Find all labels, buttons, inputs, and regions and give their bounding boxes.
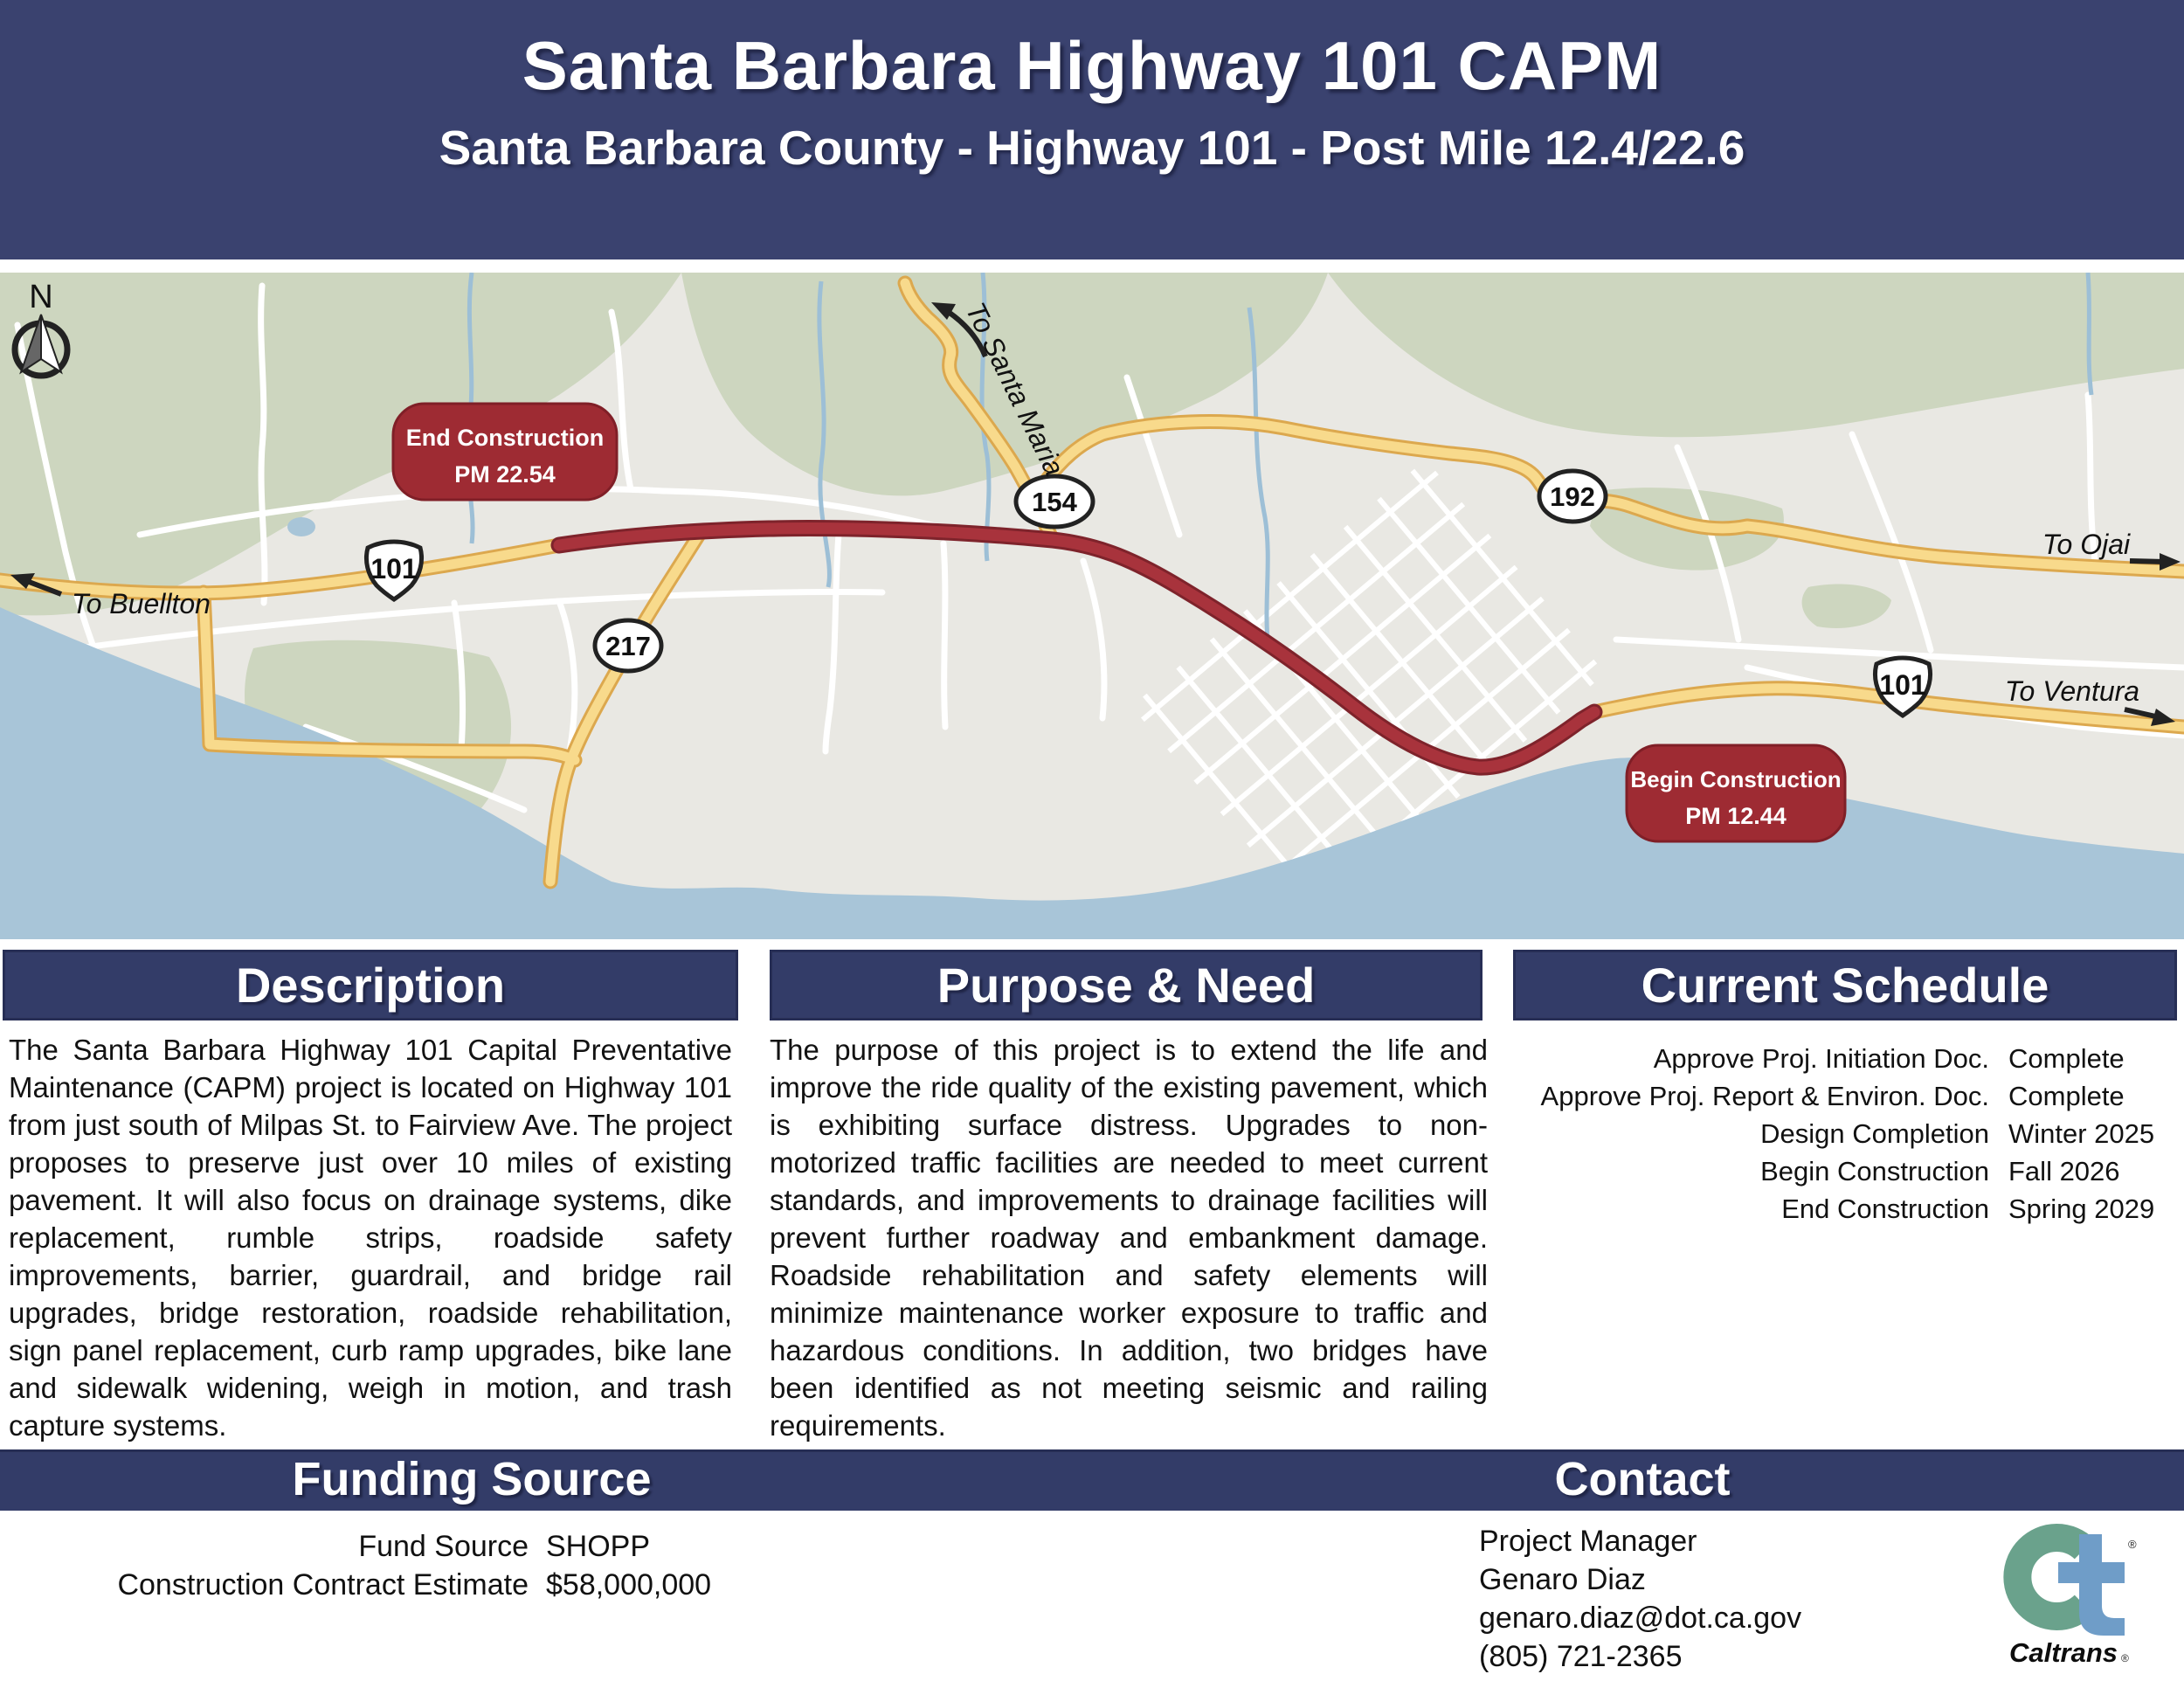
registered-mark: ® — [2121, 1652, 2129, 1664]
funding-row: Fund Source SHOPP — [74, 1527, 711, 1566]
schedule-milestone: Begin Construction — [1513, 1152, 1989, 1190]
description-header: Description — [3, 950, 738, 1020]
caltrans-wordmark: Caltrans — [2009, 1637, 2118, 1668]
svg-text:101: 101 — [370, 553, 417, 585]
schedule-table: Approve Proj. Initiation Doc. Complete A… — [1513, 1040, 2177, 1228]
svg-text:101: 101 — [1879, 669, 1925, 701]
svg-text:N: N — [29, 279, 52, 315]
schedule-status: Complete — [1989, 1040, 2125, 1077]
svg-text:Begin Construction: Begin Construction — [1630, 766, 1841, 792]
svg-text:154: 154 — [1032, 487, 1077, 517]
schedule-status: Complete — [1989, 1077, 2125, 1115]
svg-text:PM 12.44: PM 12.44 — [1685, 803, 1787, 829]
registered-mark: ® — [2128, 1538, 2137, 1551]
schedule-milestone: End Construction — [1513, 1190, 1989, 1228]
contact-header: Contact — [1555, 1452, 1731, 1506]
funding-value: $58,000,000 — [529, 1566, 711, 1604]
schedule-milestone: Approve Proj. Report & Environ. Doc. — [1513, 1077, 1989, 1115]
sr-217-shield: 217 — [595, 620, 661, 671]
schedule-row: End Construction Spring 2029 — [1513, 1190, 2177, 1228]
funding-value: SHOPP — [529, 1527, 650, 1566]
schedule-status: Fall 2026 — [1989, 1152, 2120, 1190]
project-location-map: 101 101 217 154 192 To Buellton To Ojai … — [0, 273, 2184, 939]
schedule-milestone: Design Completion — [1513, 1115, 1989, 1152]
funding-label: Fund Source — [74, 1527, 529, 1566]
svg-text:217: 217 — [605, 631, 651, 661]
poster-header: Santa Barbara Highway 101 CAPM Santa Bar… — [0, 0, 2184, 259]
contact-block: Project Manager Genaro Diaz genaro.diaz@… — [1479, 1522, 1801, 1676]
schedule-milestone: Approve Proj. Initiation Doc. — [1513, 1040, 1989, 1077]
svg-text:192: 192 — [1550, 481, 1595, 512]
page-title: Santa Barbara Highway 101 CAPM — [0, 0, 2184, 106]
contact-phone: (805) 721-2365 — [1479, 1637, 1801, 1676]
label-to-buellton: To Buellton — [72, 588, 211, 619]
contact-role: Project Manager — [1479, 1522, 1801, 1560]
purpose-need-text: The purpose of this project is to extend… — [770, 1031, 1488, 1444]
contact-email: genaro.diaz@dot.ca.gov — [1479, 1599, 1801, 1637]
schedule-row: Begin Construction Fall 2026 — [1513, 1152, 2177, 1190]
label-to-ojai: To Ojai — [2042, 529, 2131, 560]
page-subtitle: Santa Barbara County - Highway 101 - Pos… — [0, 120, 2184, 176]
current-schedule-header: Current Schedule — [1513, 950, 2177, 1020]
contact-name: Genaro Diaz — [1479, 1560, 1801, 1599]
label-to-ventura: To Ventura — [2005, 675, 2139, 707]
schedule-status: Spring 2029 — [1989, 1190, 2154, 1228]
schedule-row: Approve Proj. Initiation Doc. Complete — [1513, 1040, 2177, 1077]
begin-construction-badge: Begin Construction PM 12.44 — [1627, 745, 1845, 841]
svg-text:End Construction: End Construction — [406, 425, 604, 451]
end-construction-badge: End Construction PM 22.54 — [393, 404, 617, 500]
funding-label: Construction Contract Estimate — [74, 1566, 529, 1604]
sr-154-shield: 154 — [1016, 476, 1093, 527]
schedule-row: Approve Proj. Report & Environ. Doc. Com… — [1513, 1077, 2177, 1115]
svg-text:PM 22.54: PM 22.54 — [454, 461, 556, 488]
purpose-need-header: Purpose & Need — [770, 950, 1482, 1020]
funding-row: Construction Contract Estimate $58,000,0… — [74, 1566, 711, 1604]
caltrans-logo: ® Caltrans ® — [1994, 1522, 2142, 1671]
schedule-status: Winter 2025 — [1989, 1115, 2154, 1152]
description-text: The Santa Barbara Highway 101 Capital Pr… — [9, 1031, 732, 1444]
funding-table: Fund Source SHOPP Construction Contract … — [74, 1527, 711, 1604]
map-canvas: 101 101 217 154 192 To Buellton To Ojai … — [0, 273, 2184, 939]
funding-source-header: Funding Source — [293, 1452, 652, 1506]
sr-192-shield: 192 — [1539, 471, 1606, 522]
pond — [287, 517, 315, 536]
schedule-row: Design Completion Winter 2025 — [1513, 1115, 2177, 1152]
